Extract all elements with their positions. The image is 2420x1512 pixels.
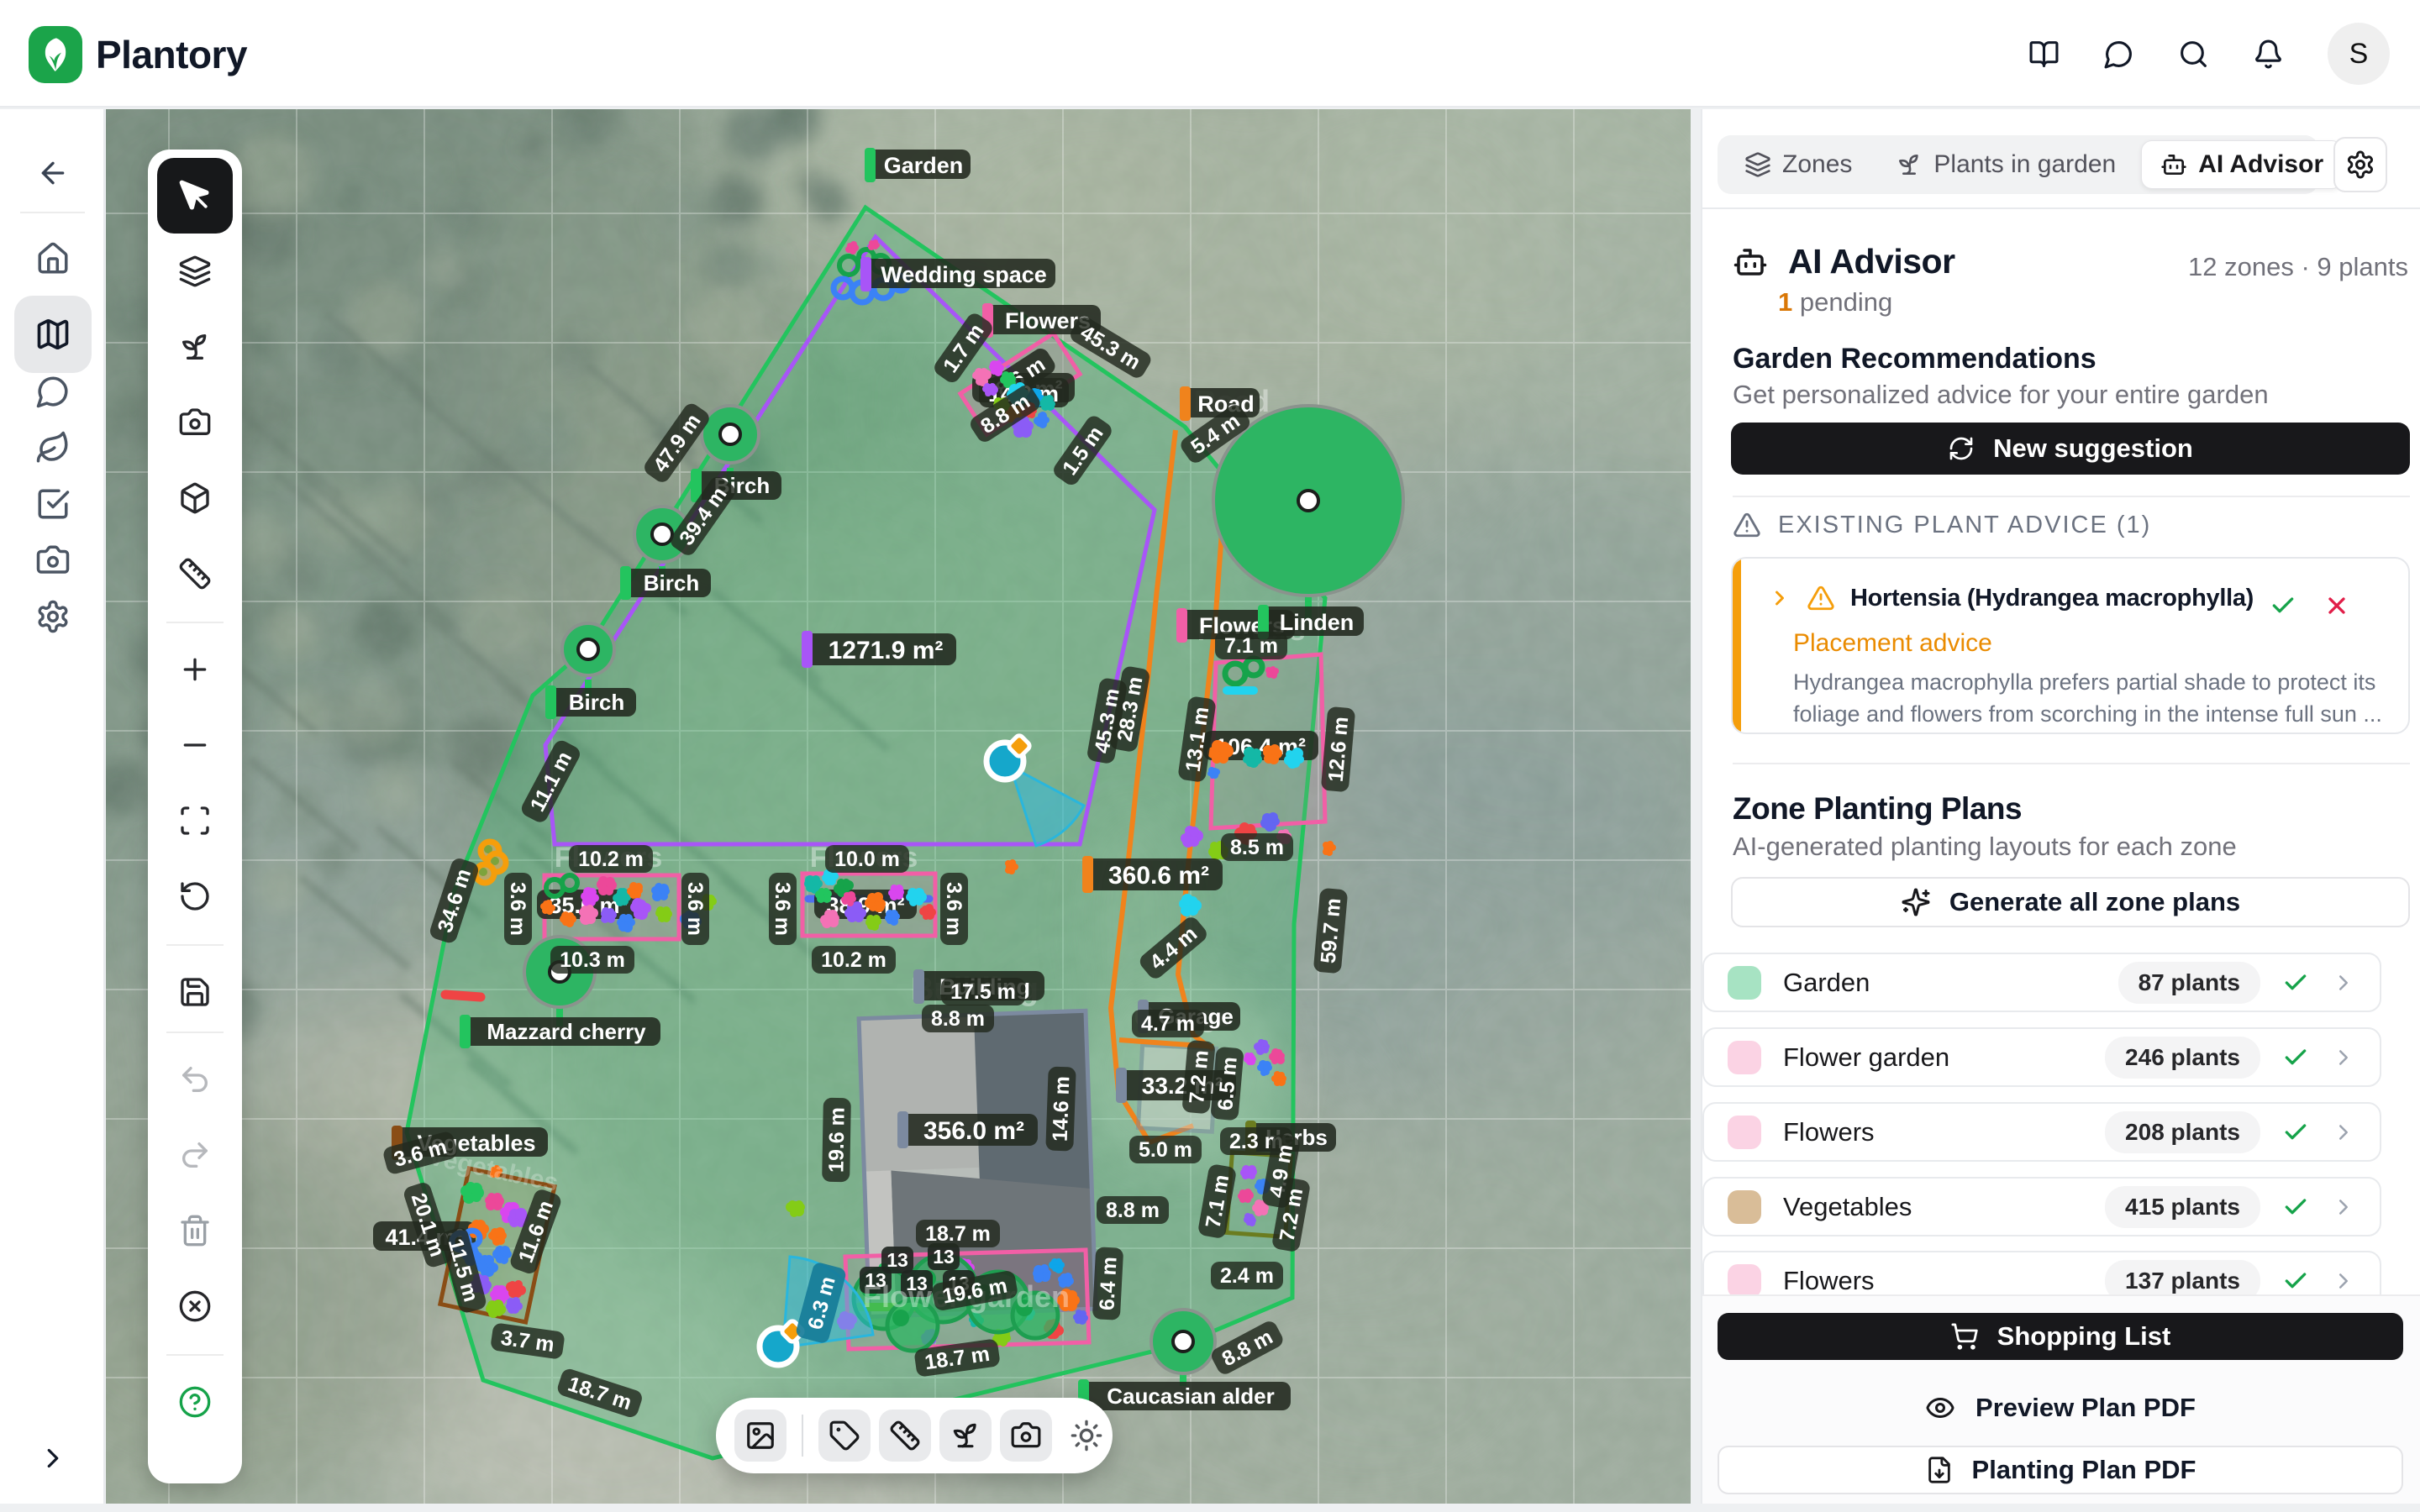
svg-text:360.6 m²: 360.6 m² [1108,862,1209,890]
svg-text:10.2 m: 10.2 m [578,848,644,871]
svg-text:19.6 m: 19.6 m [824,1107,849,1173]
svg-text:8.8 m: 8.8 m [931,1007,985,1031]
svg-text:8.8 m: 8.8 m [1106,1199,1160,1222]
svg-text:Birch: Birch [644,570,699,596]
svg-text:10.0 m: 10.0 m [834,848,900,871]
svg-text:3.6 m: 3.6 m [771,882,794,936]
svg-text:10.3 m: 10.3 m [560,948,625,972]
svg-text:7.2 m: 7.2 m [1185,1049,1213,1105]
svg-text:14.6 m: 14.6 m [1049,1076,1075,1142]
svg-text:1271.9 m²: 1271.9 m² [829,637,944,664]
svg-text:6.5 m: 6.5 m [1213,1056,1241,1111]
svg-text:Linden: Linden [1280,610,1355,635]
svg-text:Birch: Birch [569,690,624,715]
svg-text:2.4 m: 2.4 m [1220,1264,1274,1288]
svg-text:5.0 m: 5.0 m [1139,1138,1192,1162]
svg-text:3.6 m: 3.6 m [506,882,529,936]
svg-text:4.7 m: 4.7 m [1141,1012,1195,1036]
svg-text:10.2 m: 10.2 m [821,948,886,972]
svg-text:3.6 m: 3.6 m [683,882,707,936]
svg-text:Caucasian alder: Caucasian alder [1107,1383,1274,1409]
svg-text:6.4 m: 6.4 m [1095,1256,1121,1310]
svg-text:3.6 m: 3.6 m [942,882,965,936]
svg-text:7.1 m: 7.1 m [1224,634,1278,658]
svg-text:13: 13 [933,1246,955,1268]
svg-text:356.0 m²: 356.0 m² [923,1117,1024,1145]
svg-text:17.5 m: 17.5 m [950,980,1016,1004]
svg-text:18.7 m: 18.7 m [925,1222,991,1246]
svg-text:8.5 m: 8.5 m [1230,836,1284,859]
svg-text:13: 13 [886,1249,908,1271]
svg-text:Wedding space: Wedding space [881,262,1047,287]
svg-text:Garden: Garden [884,153,964,178]
svg-text:Mazzard cherry: Mazzard cherry [487,1019,646,1044]
